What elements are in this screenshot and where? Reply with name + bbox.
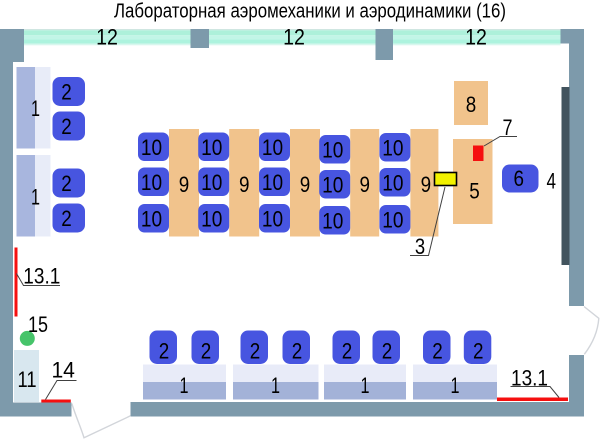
svg-text:2: 2	[250, 339, 261, 364]
svg-text:13.1: 13.1	[23, 264, 60, 289]
svg-text:10: 10	[141, 135, 162, 160]
svg-text:2: 2	[61, 80, 72, 105]
svg-text:10: 10	[262, 135, 283, 160]
svg-text:2: 2	[61, 206, 72, 231]
svg-text:1: 1	[31, 96, 40, 121]
svg-text:10: 10	[382, 135, 403, 160]
svg-text:9: 9	[359, 172, 370, 197]
svg-text:2: 2	[61, 114, 72, 139]
svg-text:5: 5	[469, 179, 480, 204]
svg-text:1: 1	[361, 373, 370, 398]
svg-text:2: 2	[61, 171, 72, 196]
svg-text:9: 9	[421, 172, 432, 197]
svg-text:2: 2	[473, 339, 484, 364]
svg-text:15: 15	[28, 312, 48, 337]
svg-text:Лабораторная аэромеханики и аэ: Лабораторная аэромеханики и аэродинамики…	[114, 0, 506, 22]
svg-text:10: 10	[201, 135, 222, 160]
svg-text:12: 12	[96, 25, 118, 50]
svg-text:12: 12	[283, 25, 305, 50]
svg-text:2: 2	[159, 339, 170, 364]
svg-text:12: 12	[465, 25, 487, 50]
svg-text:2: 2	[432, 339, 443, 364]
svg-text:2: 2	[292, 339, 303, 364]
svg-text:10: 10	[382, 170, 403, 195]
svg-text:2: 2	[201, 339, 212, 364]
svg-text:9: 9	[239, 172, 250, 197]
svg-text:2: 2	[342, 339, 353, 364]
svg-text:10: 10	[201, 170, 222, 195]
svg-text:11: 11	[18, 367, 37, 392]
svg-text:1: 1	[180, 373, 189, 398]
svg-text:10: 10	[322, 172, 343, 197]
svg-text:9: 9	[300, 172, 311, 197]
svg-text:10: 10	[201, 206, 222, 231]
svg-text:10: 10	[262, 170, 283, 195]
svg-text:10: 10	[382, 207, 403, 232]
svg-text:10: 10	[141, 170, 162, 195]
svg-text:1: 1	[451, 373, 460, 398]
svg-text:9: 9	[179, 172, 190, 197]
svg-text:10: 10	[322, 208, 343, 233]
svg-text:8: 8	[466, 92, 477, 117]
svg-text:14: 14	[51, 358, 75, 383]
svg-text:6: 6	[514, 166, 525, 191]
svg-text:2: 2	[382, 339, 393, 364]
svg-text:4: 4	[547, 169, 557, 194]
svg-text:10: 10	[262, 206, 283, 231]
svg-text:10: 10	[141, 206, 162, 231]
svg-text:1: 1	[271, 373, 280, 398]
svg-text:10: 10	[322, 137, 343, 162]
svg-text:1: 1	[31, 184, 40, 209]
